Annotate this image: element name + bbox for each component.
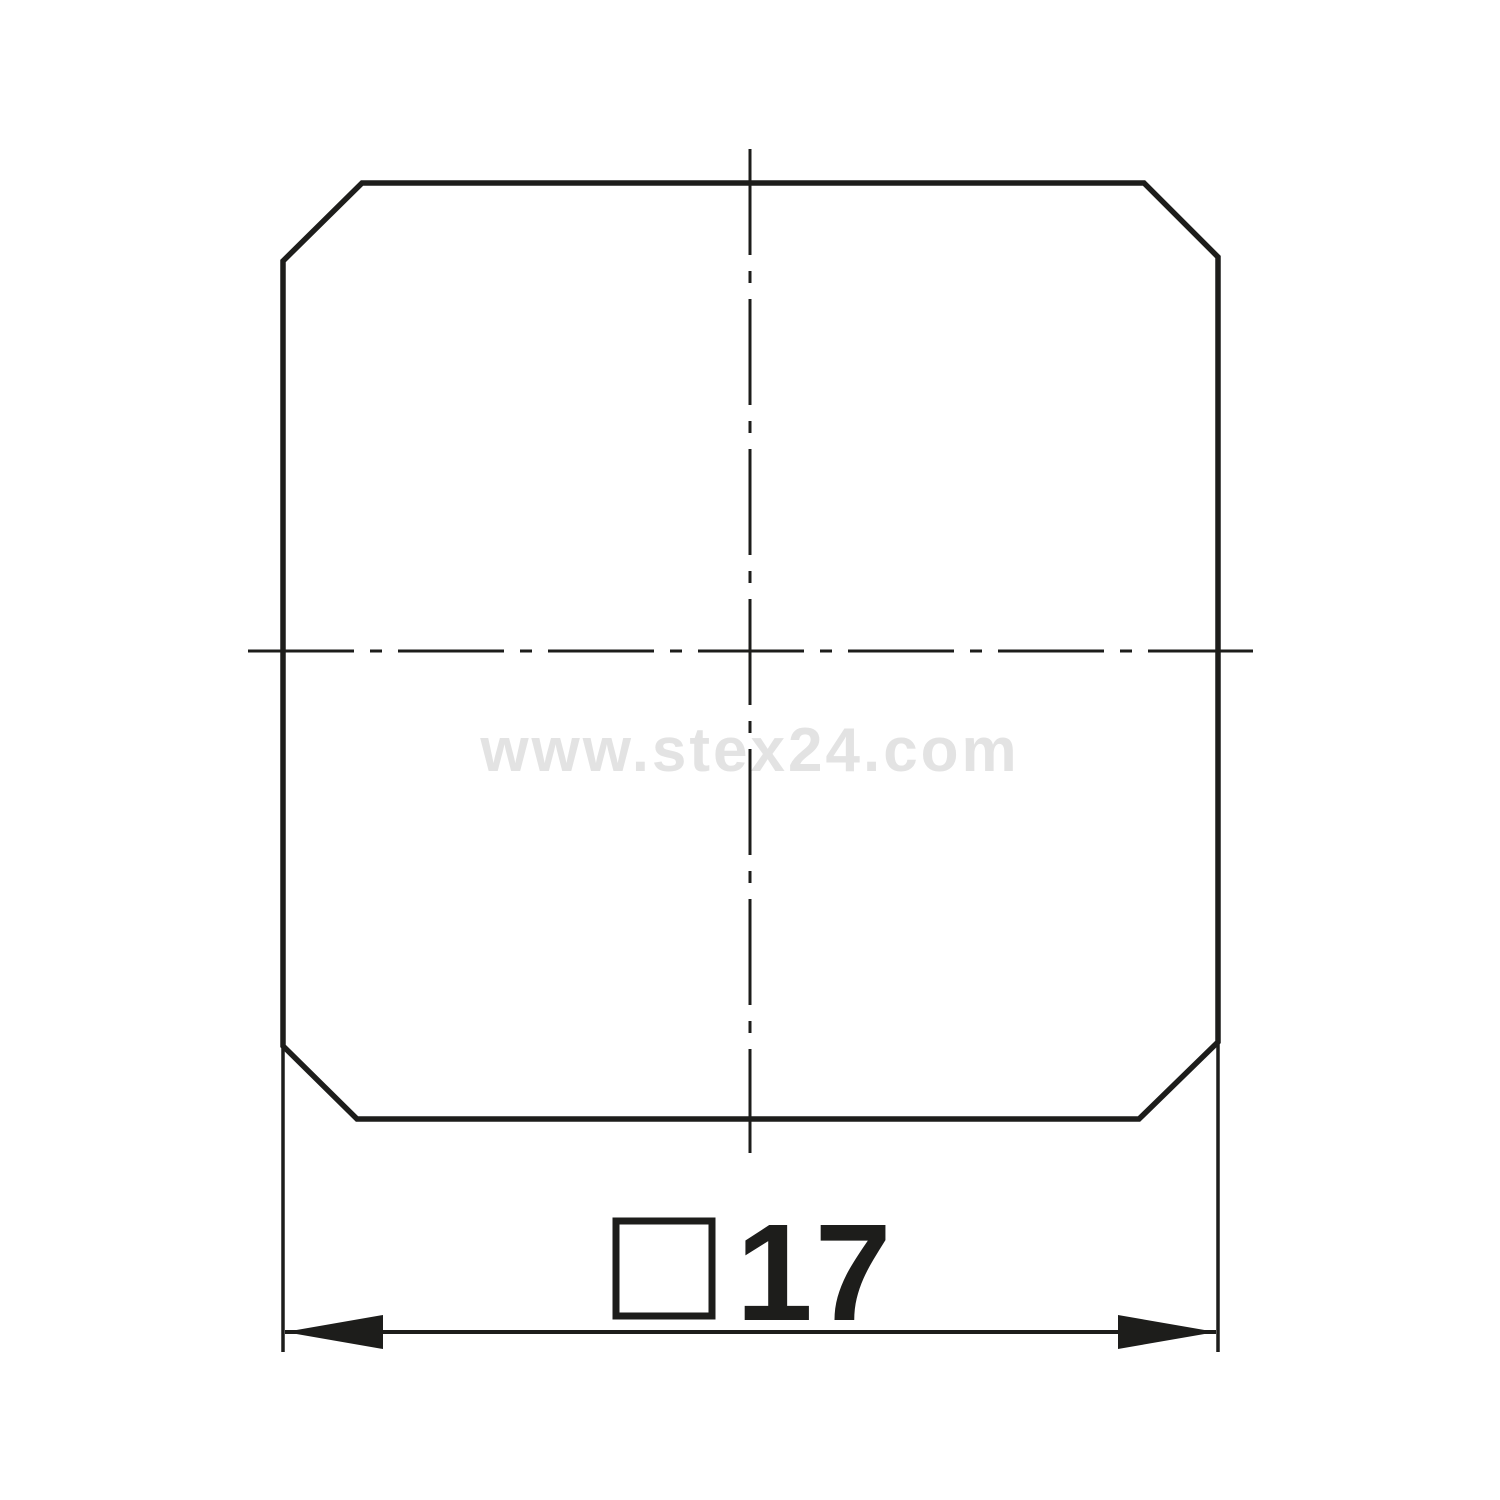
technical-drawing-canvas: www.stex24.com 17: [0, 0, 1500, 1500]
dimension-value: 17: [736, 1196, 894, 1350]
dimension-arrow-left-icon: [285, 1315, 383, 1349]
dimension-arrow-right-icon: [1118, 1315, 1216, 1349]
drawing-svg: www.stex24.com 17: [0, 0, 1500, 1500]
square-symbol-icon: [616, 1221, 712, 1316]
